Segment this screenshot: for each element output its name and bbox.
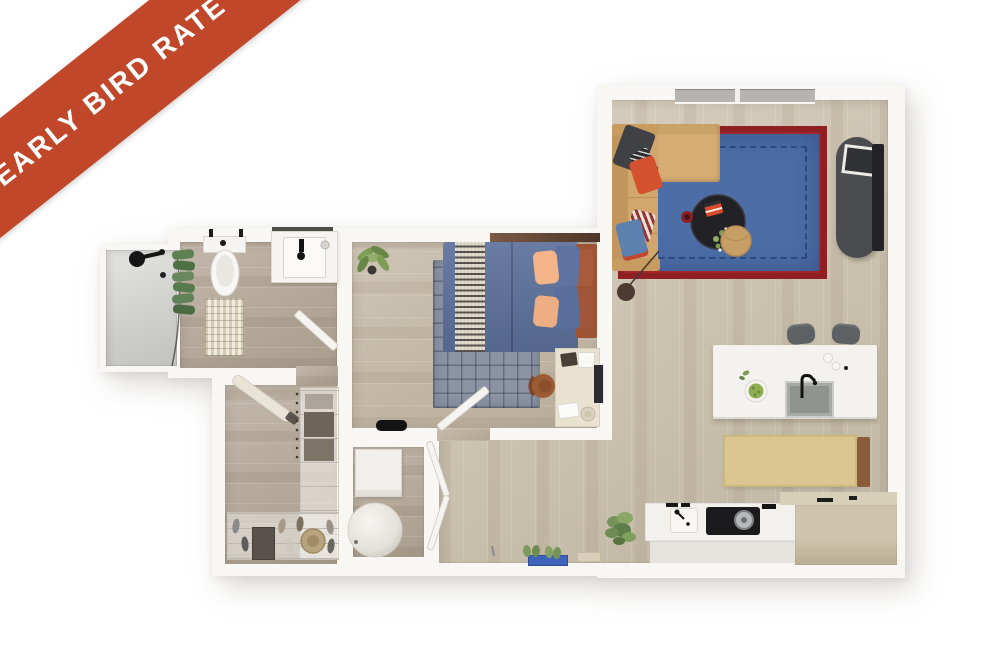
desk-plant-pot: [581, 407, 595, 421]
straw-hat: [301, 529, 325, 553]
toilet-bowl: [211, 240, 239, 296]
ironing-board: [231, 373, 300, 425]
closet-rod-hooks: [296, 393, 299, 459]
island-cups: [824, 354, 849, 371]
bedroom-plant: [355, 244, 391, 275]
bedroom-door: [436, 386, 489, 431]
entry-shoes: [522, 545, 562, 560]
shower-towels: [172, 249, 196, 315]
floor-lamp: [617, 251, 659, 301]
bathroom-door: [294, 310, 339, 351]
island-faucet: [802, 376, 817, 399]
desk-chair: [530, 374, 555, 398]
vanity-faucet: [297, 239, 329, 260]
stove-knob: [735, 511, 753, 529]
entry-bifold-door: [426, 441, 450, 550]
bathroom-wall-hooks: [209, 229, 243, 237]
kitchen-plant: [605, 512, 636, 545]
ottoman-pouf: [721, 226, 751, 256]
floorplan-image: EARLY BIRD RATE: [0, 0, 1000, 667]
red-mug: [681, 211, 693, 223]
counter-sink-faucet: [675, 510, 690, 526]
shoe-horn: [492, 546, 494, 556]
water-tank: [348, 503, 402, 557]
shower-head: [129, 249, 166, 278]
salad-bowl: [739, 370, 767, 402]
